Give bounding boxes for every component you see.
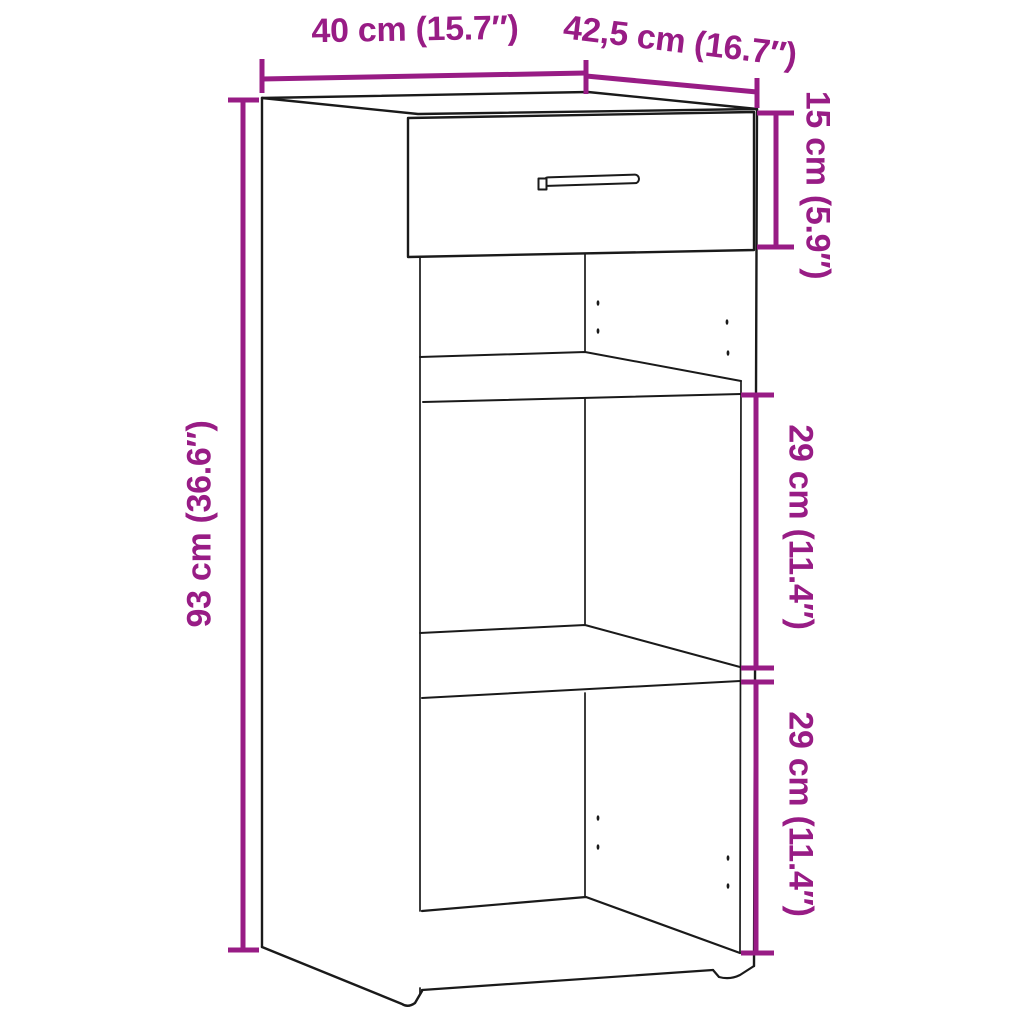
dim-line-depth bbox=[586, 76, 757, 108]
dimension-lines bbox=[228, 59, 794, 953]
diagram-canvas bbox=[0, 0, 1024, 1024]
dim-width-label: 40 cm (15.7″) bbox=[311, 9, 519, 52]
upper-shelf bbox=[420, 352, 741, 402]
furniture-dimension-diagram: 40 cm (15.7″) 42,5 cm (16.7″) 15 cm (5.9… bbox=[0, 0, 1024, 1024]
dim-line-upper-compartment bbox=[741, 395, 774, 668]
cabinet-drawing bbox=[262, 92, 757, 1006]
cabinet-left-panel bbox=[262, 98, 422, 1006]
cabinet-interior-edges bbox=[420, 254, 741, 994]
dim-line-total-height bbox=[228, 100, 259, 950]
dim-lower-compartment-label: 29 cm (11.4″) bbox=[781, 711, 820, 916]
dim-total-height-label: 93 cm (36.6″) bbox=[181, 420, 220, 627]
cabinet-top-panel bbox=[262, 92, 757, 114]
dim-upper-compartment-label: 29 cm (11.4″) bbox=[781, 424, 820, 629]
dim-line-lower-compartment bbox=[741, 682, 774, 953]
lower-shelf bbox=[420, 625, 740, 698]
dim-line-drawer-height bbox=[757, 113, 794, 247]
shelf-pin-holes bbox=[597, 300, 730, 889]
dim-line-width bbox=[262, 59, 586, 94]
bottom-panel bbox=[422, 897, 754, 990]
drawer-handle bbox=[539, 175, 640, 190]
dim-drawer-height-label: 15 cm (5.9″) bbox=[798, 91, 837, 279]
